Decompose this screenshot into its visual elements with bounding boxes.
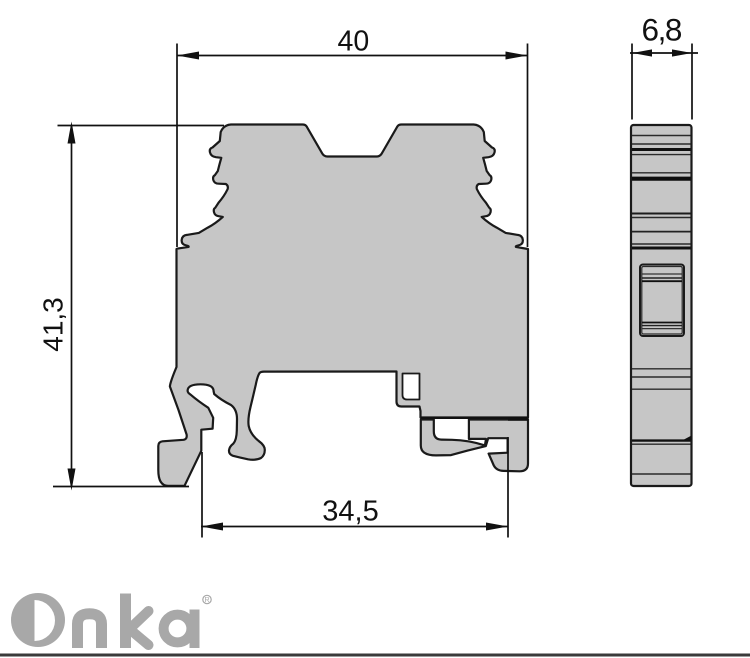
svg-text:R: R bbox=[204, 597, 209, 604]
svg-text:41,3: 41,3 bbox=[38, 297, 69, 352]
svg-text:6,8: 6,8 bbox=[642, 12, 682, 48]
svg-text:34,5: 34,5 bbox=[322, 496, 378, 528]
svg-text:40: 40 bbox=[338, 26, 370, 58]
